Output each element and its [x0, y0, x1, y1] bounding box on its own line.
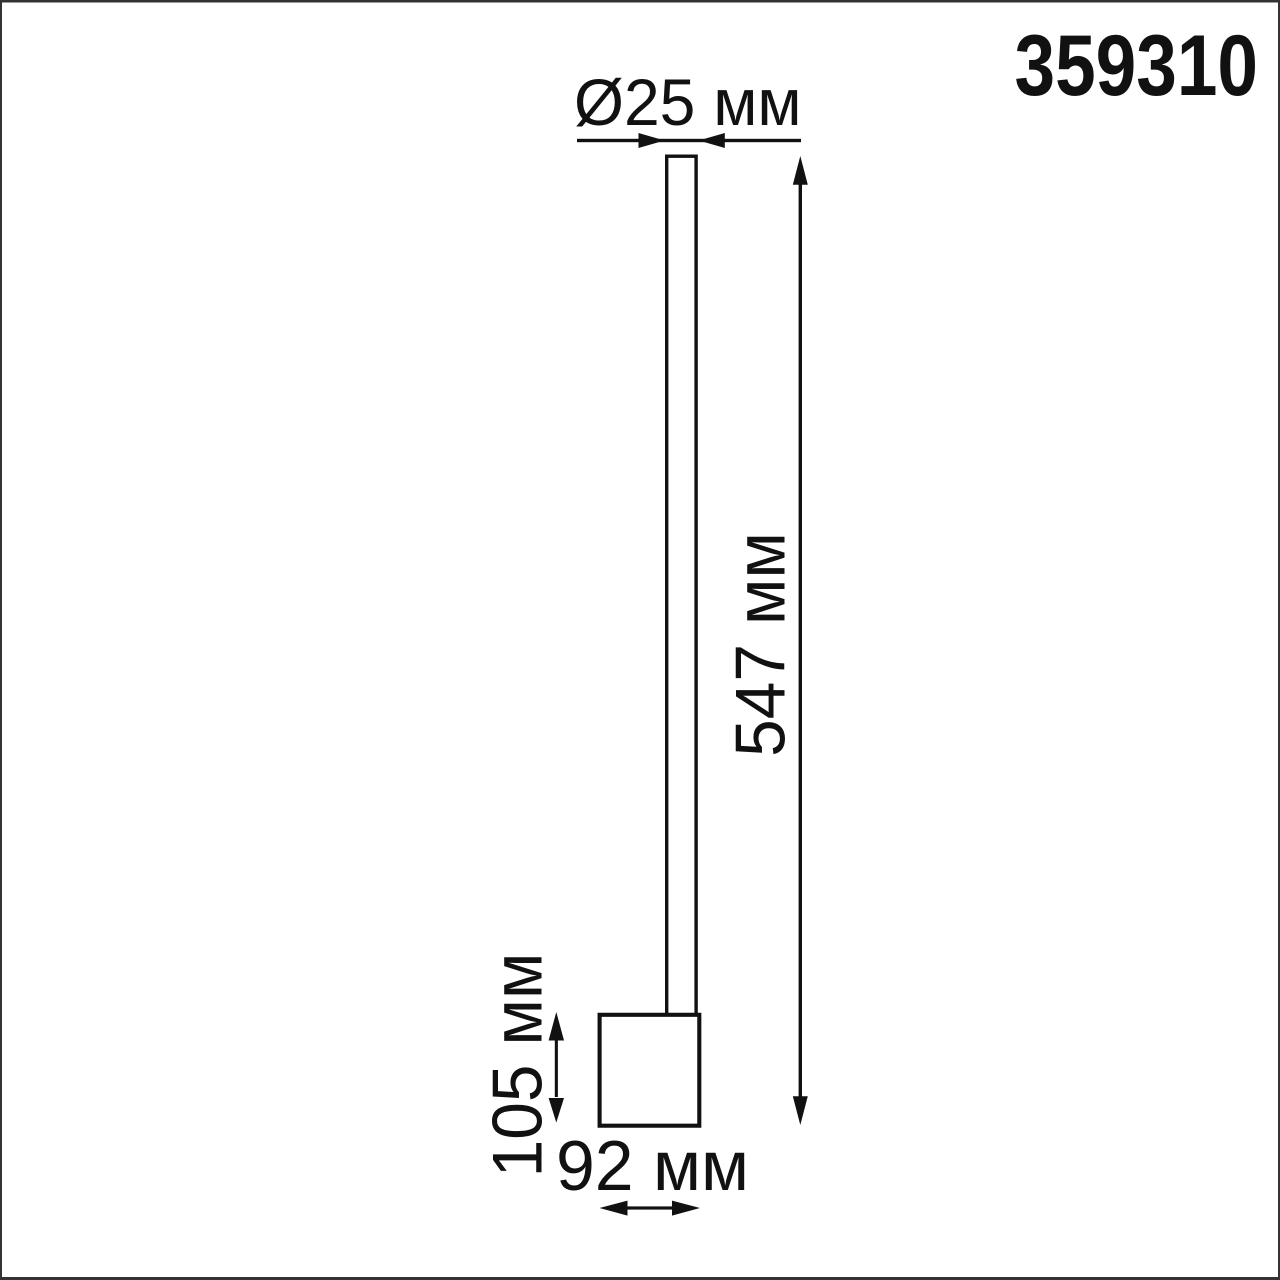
svg-text:105 мм: 105 мм	[477, 953, 557, 1178]
svg-text:359310: 359310	[1015, 17, 1258, 113]
svg-text:92 мм: 92 мм	[556, 1127, 749, 1205]
svg-text:547 мм: 547 мм	[720, 532, 800, 757]
svg-text:Ø25 мм: Ø25 мм	[574, 65, 802, 139]
